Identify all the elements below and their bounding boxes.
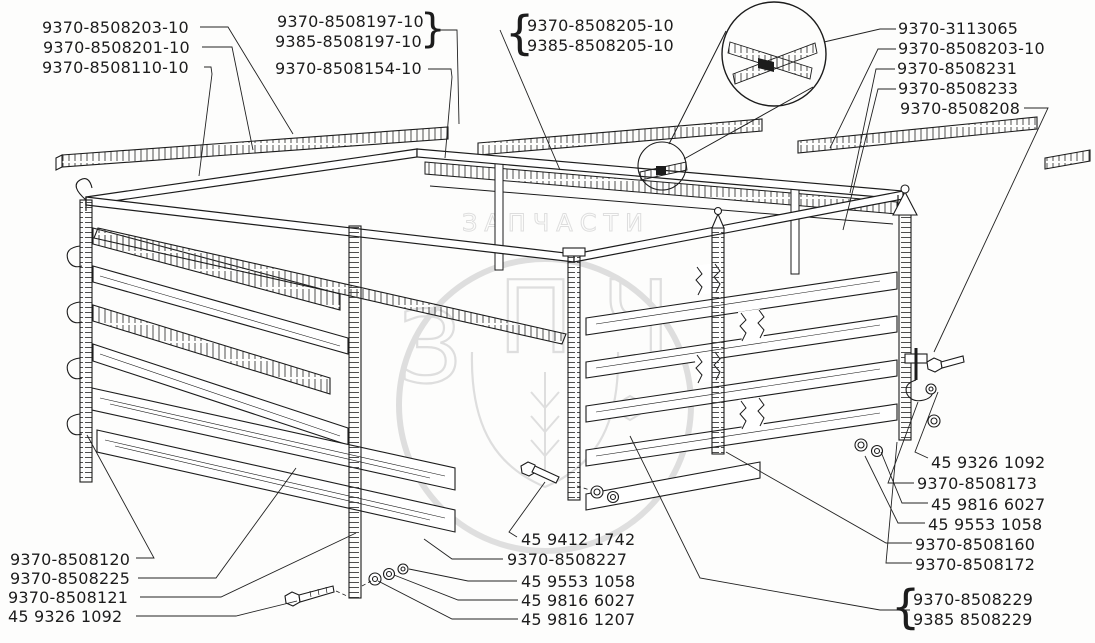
part-label: 9385-8508205-10	[527, 37, 674, 54]
watermark-arc-text: ЗАПЧАСТИ	[462, 209, 650, 237]
part-label: 45 9326 1092	[931, 454, 1045, 471]
part-label: 9370-8508154-10	[275, 60, 422, 77]
part-label: 9370-8508160	[915, 536, 1035, 553]
part-label: 9370-8508121	[8, 589, 128, 606]
part-label: 45 9816 6027	[931, 496, 1045, 513]
part-label: 45 9326 1092	[8, 608, 122, 625]
part-label: 9370-8508203-10	[898, 40, 1045, 57]
part-label: 9370-8508173	[917, 475, 1037, 492]
part-label: 9370-8508203-10	[42, 19, 189, 36]
part-label: 9370-3113065	[898, 20, 1018, 37]
watermark-emblem: ЗАПЧАСТИ З П Ч	[398, 209, 691, 551]
part-label: 9370-8508225	[10, 570, 130, 587]
part-label: 9370-8508201-10	[43, 39, 190, 56]
part-label: 9370-8508231	[897, 60, 1017, 77]
part-label: 9370-8508197-10	[277, 13, 424, 30]
part-label: 9385-8508197-10	[275, 33, 422, 50]
part-label: 9370-8508120	[10, 551, 130, 568]
part-label: 45 9553 1058	[928, 516, 1042, 533]
part-label: 45 9816 6027	[521, 592, 635, 609]
bolt	[285, 592, 300, 606]
watermark-letter: П	[498, 259, 573, 376]
part-label: 9370-8508205-10	[527, 17, 674, 34]
parts-diagram-page: ЗАПЧАСТИ З П Ч	[0, 0, 1095, 643]
part-label: 45 9553 1058	[521, 573, 635, 590]
brace: }	[420, 6, 445, 52]
part-label: 9370-8508172	[915, 556, 1035, 573]
part-label: 9370-8508208	[900, 100, 1020, 117]
bolt	[927, 358, 942, 372]
part-label: 9370-8508110-10	[42, 59, 189, 76]
part-label: 9370-8508233	[898, 80, 1018, 97]
part-label: 45 9412 1742	[521, 531, 635, 548]
part-label: 9370-8508229	[913, 591, 1033, 608]
part-label: 9385 8508229	[913, 611, 1032, 628]
part-label: 9370-8508227	[507, 551, 627, 568]
part-label: 45 9816 1207	[521, 611, 635, 628]
